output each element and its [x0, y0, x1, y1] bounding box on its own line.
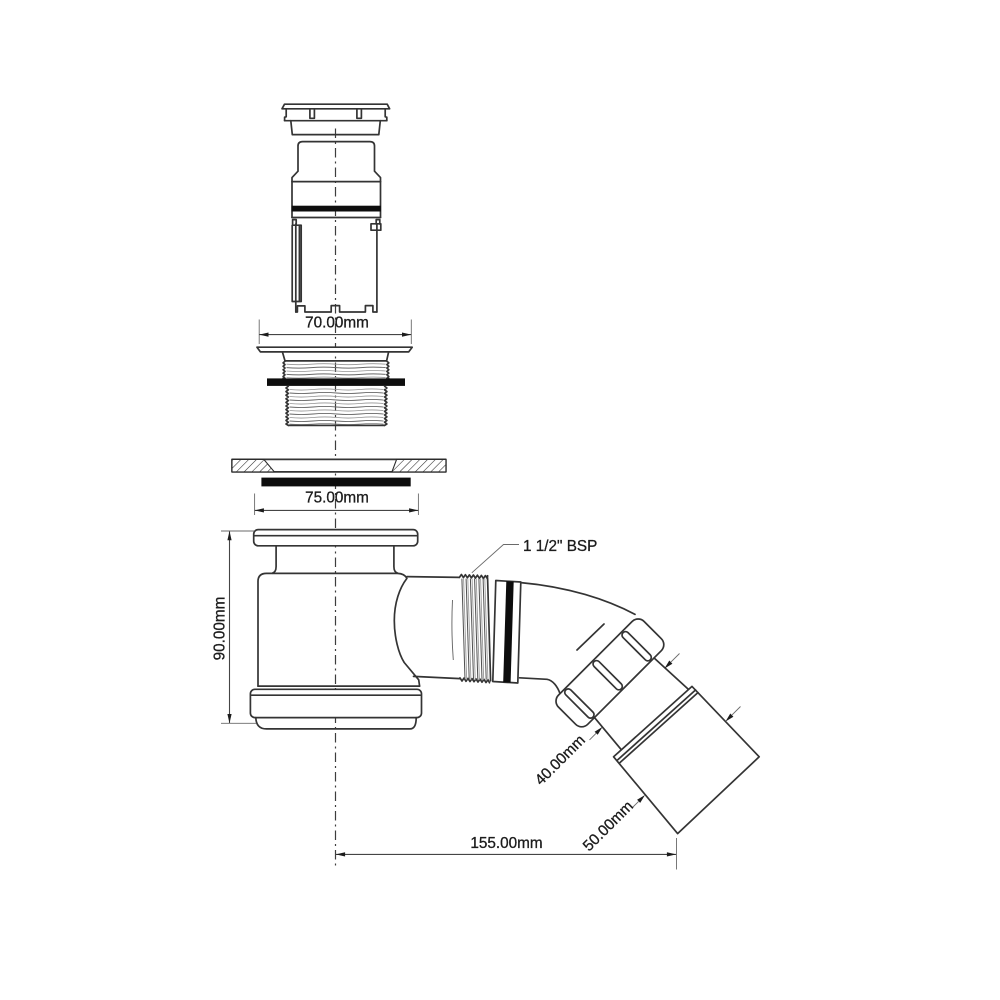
svg-text:155.00mm: 155.00mm — [470, 835, 542, 852]
svg-text:90.00mm: 90.00mm — [212, 597, 229, 661]
svg-text:70.00mm: 70.00mm — [305, 315, 369, 332]
svg-text:1 1/2" BSP: 1 1/2" BSP — [523, 538, 597, 555]
svg-text:75.00mm: 75.00mm — [305, 490, 369, 507]
